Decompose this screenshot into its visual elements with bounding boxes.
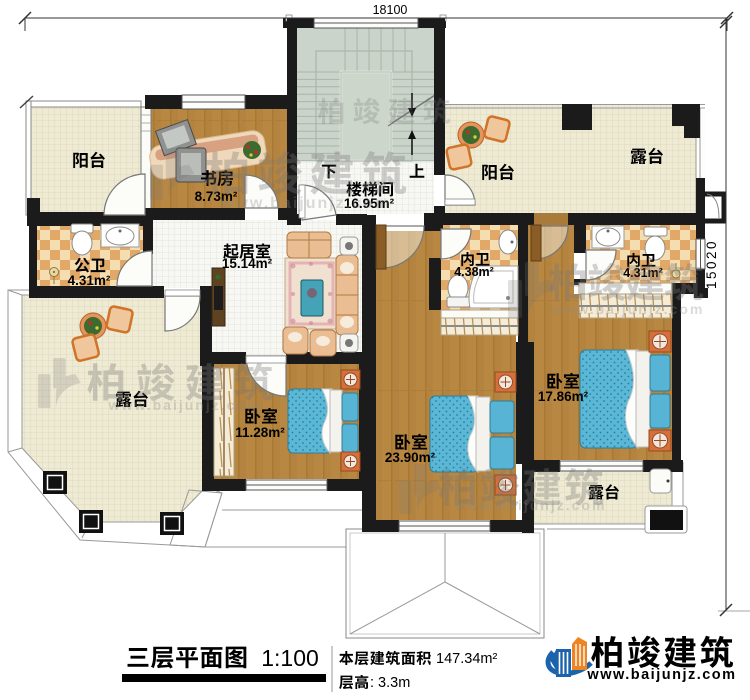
svg-text:15.14m²: 15.14m²	[222, 256, 273, 271]
svg-text:1:100: 1:100	[261, 645, 319, 671]
svg-text:www.baijunjz.com: www.baijunjz.com	[586, 667, 736, 683]
svg-text:www.baijunjz.com: www.baijunjz.com	[453, 497, 607, 513]
svg-text:17.86m²: 17.86m²	[538, 389, 589, 404]
svg-text:4.31m²: 4.31m²	[68, 273, 111, 288]
svg-text:18100: 18100	[373, 3, 408, 17]
svg-text:www.baijunjz.com: www.baijunjz.com	[551, 301, 705, 317]
svg-text:www.baijunjz.com: www.baijunjz.com	[108, 397, 262, 413]
svg-text:23.90m²: 23.90m²	[385, 450, 436, 465]
svg-text:: 147.34m²: : 147.34m²	[428, 651, 497, 667]
svg-text:: 3.3m: : 3.3m	[370, 675, 410, 691]
svg-text:www.baijunjz.com: www.baijunjz.com	[220, 195, 391, 212]
svg-text:4.38m²: 4.38m²	[454, 265, 494, 279]
svg-text:11.28m²: 11.28m²	[235, 425, 285, 440]
svg-text:15020: 15020	[704, 239, 719, 289]
